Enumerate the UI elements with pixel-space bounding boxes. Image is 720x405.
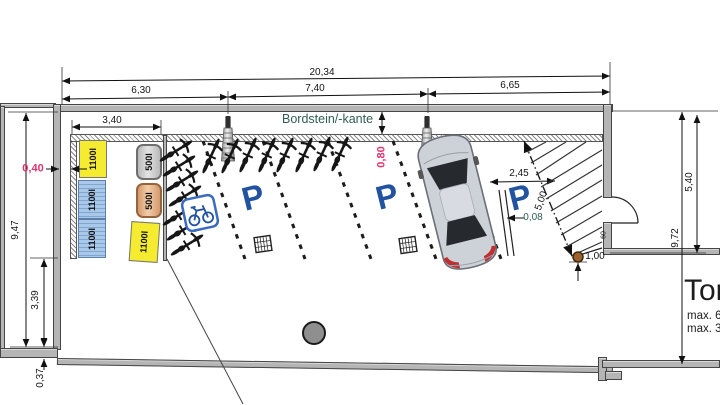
dim-ramp-length: 5,00 [534,190,550,212]
waste-bin-1100-blue-2: 1100l [78,219,106,258]
neighbor-wall-top-left [0,103,56,108]
waste-bin-1100-yellow: 1100l [79,140,107,178]
dim-tree-offset: 1,00 [585,252,604,262]
dim-overall: 20,34 [309,68,334,78]
gate-max-line-1: max. 6 [687,311,720,323]
bicycle-icon [162,164,203,198]
tree-marker [573,252,583,262]
leader-arrows [44,169,578,370]
parking-symbol-3: P [505,178,534,215]
dim-gap-left: 0,40 [22,164,43,175]
drain-grate-icon [399,236,417,253]
bike-sign-icon [181,194,219,232]
dim-curb-gap: 0,80 [377,146,388,167]
waste-bin-1100-blue-1: 1100l [78,180,106,219]
dim-bin-width: 3,40 [102,116,121,126]
bicycle-icon [165,179,206,213]
bin-area-right-wall [163,135,167,261]
car-icon [411,129,504,274]
bicycle-icon [163,213,204,247]
leader-line [167,259,243,404]
bin-label: 500l [144,153,154,171]
plan-linework [0,0,720,405]
waste-bin-500-gray: 500l [136,144,162,180]
gate-label: Tor [684,276,720,306]
bottom-wall-main [57,358,613,373]
dim-segment-left: 6,30 [131,86,150,96]
right-wall-upper [603,104,612,198]
parking-symbol-1: P [238,178,267,215]
dim-segment-mid: 7,40 [305,84,324,94]
right-room-bottom-wall [603,248,720,255]
gate-max-line-2: max. 3 [687,324,720,336]
bin-label: 1100l [139,231,151,254]
bottom-wall-stub-left [0,348,58,358]
manhole-circle [303,322,325,344]
dim-height-right-upper: 5,40 [685,172,695,191]
dim-door-width: 60 [601,231,608,239]
bin-label: 1100l [87,227,97,249]
curb-label: Bordstein/-kante [282,112,373,126]
parking-symbol-2: P [372,177,401,214]
waste-bin-500-orange: 500l [136,183,162,218]
lower-building-bottom-wall [602,360,720,368]
left-inner-wall [53,104,61,350]
dim-height-right: 9,72 [671,228,681,247]
bin-area-wall [70,135,77,259]
drain-grate-icon [254,235,272,252]
top-wall [56,104,613,112]
bottom-wall-step-2 [605,371,622,380]
site-plan-canvas: 1100l 1100l 1100l 500l 500l 1100l [0,0,720,405]
bin-label: 1100l [88,148,98,170]
bin-label: 500l [144,192,154,210]
waste-bin-1100-yellow-2: 1100l [129,221,161,263]
dim-wall-bottom: 0,37 [36,368,46,387]
dim-height-left: 9,47 [11,220,21,239]
door-swing [612,197,638,223]
dim-left-lower: 3,39 [31,290,41,309]
bicycle-icon [167,228,208,262]
dim-segment-right: 6,65 [500,81,519,91]
left-outer-wall [0,106,5,350]
curb-strip [70,134,603,142]
bin-label: 1100l [87,188,97,210]
